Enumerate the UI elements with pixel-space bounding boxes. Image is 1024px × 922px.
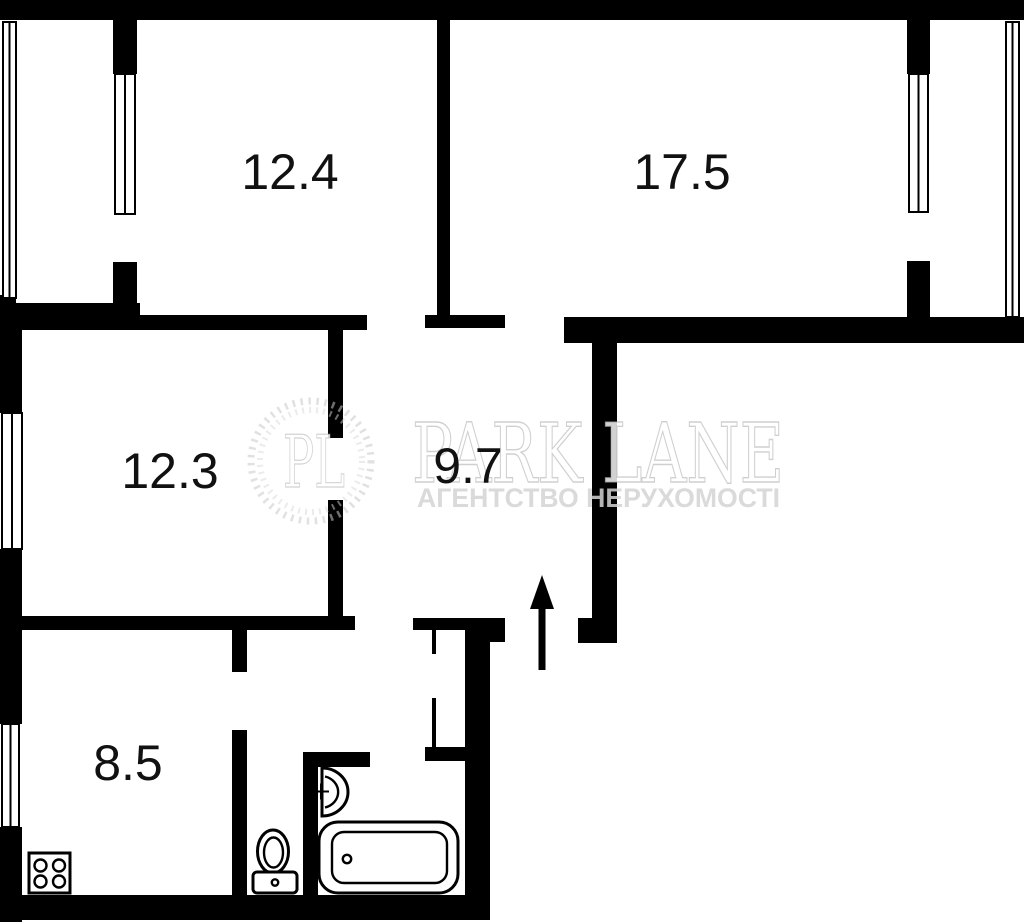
window-icon xyxy=(3,22,16,298)
floor-plan-page: PL PARK LANE АГЕНТСТВО НЕРУХОМОСТІ 12.4 … xyxy=(0,0,1024,922)
entrance-arrow-icon xyxy=(530,575,554,670)
window-icon xyxy=(1006,22,1019,317)
wall-segment xyxy=(425,747,465,761)
wall-segment xyxy=(0,330,22,413)
wall-segment xyxy=(907,20,930,74)
wall-segment xyxy=(432,698,436,749)
wall-segment xyxy=(0,549,22,724)
wall-segment xyxy=(303,767,318,897)
watermark-monogram: PL xyxy=(283,420,345,504)
window-icon xyxy=(2,413,22,549)
wall-segment xyxy=(20,616,355,630)
window-icon xyxy=(115,74,135,214)
wall-segment xyxy=(140,315,367,330)
bathtub-icon xyxy=(319,822,458,893)
wall-segment xyxy=(437,20,450,316)
wall-segment xyxy=(425,315,505,328)
wall-segment xyxy=(113,18,137,74)
room-label-12-4: 12.4 xyxy=(241,144,338,200)
room-label-9-7: 9.7 xyxy=(433,438,503,494)
wall-segment xyxy=(432,630,436,654)
room-label-8-5: 8.5 xyxy=(93,735,163,791)
window-icon xyxy=(2,724,19,827)
toilet-icon xyxy=(253,830,297,893)
wall-segment xyxy=(0,0,1024,20)
stove-icon xyxy=(29,853,70,893)
wall-segment xyxy=(465,642,490,897)
window-icon xyxy=(909,74,928,212)
wall-segment xyxy=(232,630,247,672)
floor-plan: PL PARK LANE АГЕНТСТВО НЕРУХОМОСТІ 12.4 … xyxy=(0,0,1024,922)
wall-segment xyxy=(303,752,370,767)
wall-segment xyxy=(907,261,930,319)
wall-segment xyxy=(465,618,505,642)
sink-icon xyxy=(313,768,348,816)
wall-segment xyxy=(578,618,617,643)
wall-segment xyxy=(413,618,465,630)
wall-segment xyxy=(232,730,247,897)
wall-segment xyxy=(564,317,1024,343)
wall-segment xyxy=(113,262,137,330)
wall-segment xyxy=(0,895,490,920)
room-label-12-3: 12.3 xyxy=(121,443,218,499)
room-label-17-5: 17.5 xyxy=(633,144,730,200)
